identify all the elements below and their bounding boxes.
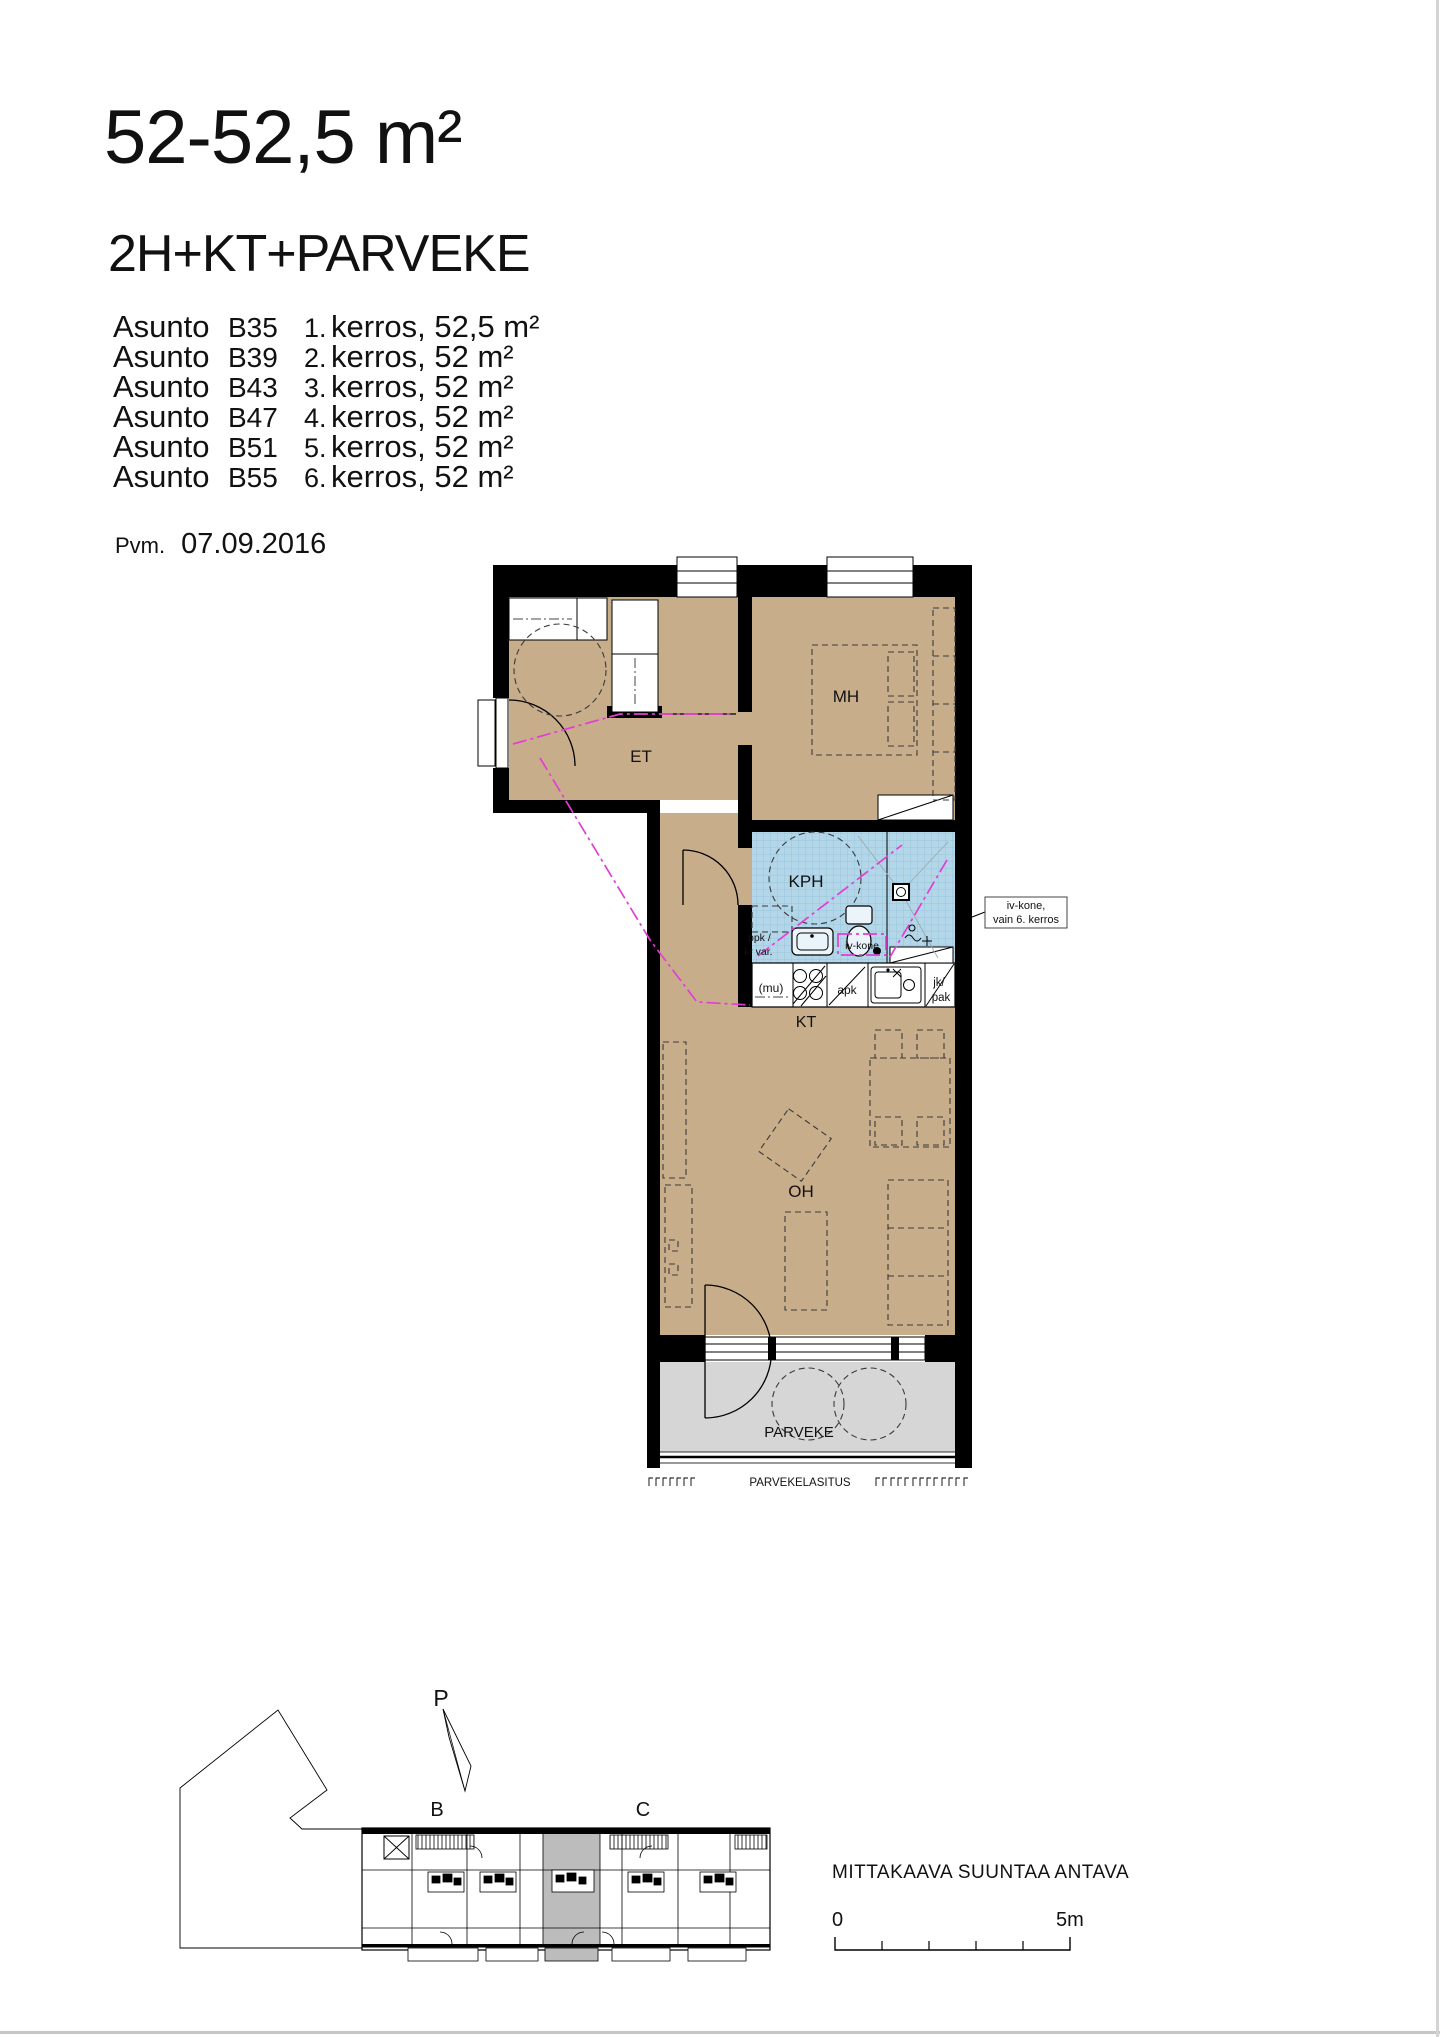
date-value: 07.09.2016 [181, 528, 326, 561]
page-title: 52-52,5 m² [104, 100, 462, 176]
apartment-row-label: Asunto [113, 402, 228, 432]
apartment-desc: kerros, 52 m² [331, 342, 514, 372]
room-label-parveke: PARVEKE [764, 1424, 833, 1441]
apartment-row: Asunto B55 6. kerros, 52 m² [113, 462, 539, 492]
apartment-floor: 4. [304, 403, 331, 433]
apartment-unit: B35 [228, 313, 304, 343]
apartment-row-label: Asunto [113, 312, 228, 342]
apartment-unit: B47 [228, 403, 304, 433]
elevator-icon [384, 1836, 409, 1859]
fixture-label-apk: apk [837, 983, 857, 997]
apartment-row: Asunto B51 5. kerros, 52 m² [113, 432, 539, 462]
glazing-label: PARVEKELASITUS [749, 1477, 851, 1489]
apartment-unit: B51 [228, 433, 304, 463]
fixture-label-ivkone: iv-kone [845, 940, 879, 952]
fixture-label-jk: jk/ [932, 977, 945, 989]
apartment-row: Asunto B43 3. kerros, 52 m² [113, 372, 539, 402]
apartment-type: 2H+KT+PARVEKE [108, 228, 530, 280]
apartment-floor: 2. [304, 343, 331, 373]
building-label-c: C [636, 1799, 650, 1821]
apartment-row: Asunto B39 2. kerros, 52 m² [113, 342, 539, 372]
scale-five: 5m [1056, 1909, 1084, 1931]
apartment-desc: kerros, 52,5 m² [331, 312, 539, 342]
scale-zero: 0 [832, 1909, 843, 1931]
room-label-kt: KT [796, 1014, 817, 1031]
page-edge-right [1436, 0, 1439, 2037]
apartment-row-label: Asunto [113, 462, 228, 492]
site-plan: P [130, 1660, 1140, 2010]
apartment-unit: B55 [228, 463, 304, 493]
apartment-desc: kerros, 52 m² [331, 462, 514, 492]
window [827, 557, 913, 597]
fixture-label-ppk: ppk / [748, 932, 771, 944]
apartment-row: Asunto B47 4. kerros, 52 m² [113, 402, 539, 432]
apartment-row-label: Asunto [113, 372, 228, 402]
building-label-b: B [430, 1799, 443, 1821]
apartment-row-label: Asunto [113, 342, 228, 372]
yard-outline [180, 1710, 362, 1948]
date-row: Pvm. 07.09.2016 [115, 528, 326, 561]
room-label-et: ET [630, 747, 652, 766]
annotation-callout: iv-kone, vain 6. kerros [967, 897, 1067, 928]
apartment-unit: B39 [228, 343, 304, 373]
apartment-desc: kerros, 52 m² [331, 372, 514, 402]
brochure-page: 52-52,5 m² 2H+KT+PARVEKE Asunto B35 1. k… [0, 0, 1440, 2037]
utility-hatch [890, 947, 953, 963]
fixture-label-krvar: kr var. [744, 946, 773, 958]
scale-bar: 0 5m [832, 1909, 1084, 1950]
apartment-unit: B43 [228, 373, 304, 403]
annotation-line2: vain 6. kerros [993, 914, 1060, 926]
washbasin-icon [792, 928, 833, 955]
room-label-kph: KPH [789, 872, 824, 891]
north-label: P [433, 1685, 448, 1711]
lower-balconies [408, 1948, 746, 1961]
apartment-floor: 3. [304, 373, 331, 403]
floorplan-drawing: ET MH KPH KT OH PARVEKE PARVEKELASITUS p… [460, 540, 1100, 1490]
apartment-desc: kerros, 52 m² [331, 432, 514, 462]
apartment-desc: kerros, 52 m² [331, 402, 514, 432]
apartment-row-label: Asunto [113, 432, 228, 462]
window [677, 557, 737, 597]
balcony-window-band [705, 1337, 925, 1360]
sliding-closet [878, 795, 953, 820]
apartment-row: Asunto B35 1. kerros, 52,5 m² [113, 312, 539, 342]
room-label-mh: MH [833, 687, 859, 706]
apartment-list: Asunto B35 1. kerros, 52,5 m² Asunto B39… [113, 312, 539, 492]
fixture-label-pak: pak [932, 992, 951, 1004]
page-edge-bottom [0, 2031, 1440, 2034]
apartment-floor: 5. [304, 433, 331, 463]
north-arrow: P [433, 1685, 471, 1791]
apartment-floor: 1. [304, 313, 331, 343]
balcony-rail [660, 1452, 955, 1463]
room-floors [509, 597, 955, 1452]
date-label: Pvm. [115, 533, 165, 559]
building-strip [362, 1828, 770, 1961]
room-label-oh: OH [788, 1182, 814, 1201]
apartment-floor: 6. [304, 463, 331, 493]
scale-note: MITTAKAAVA SUUNTAA ANTAVA [832, 1862, 1129, 1883]
fixture-label-mu: (mu) [759, 981, 784, 995]
annotation-line1: iv-kone, [1007, 900, 1046, 912]
